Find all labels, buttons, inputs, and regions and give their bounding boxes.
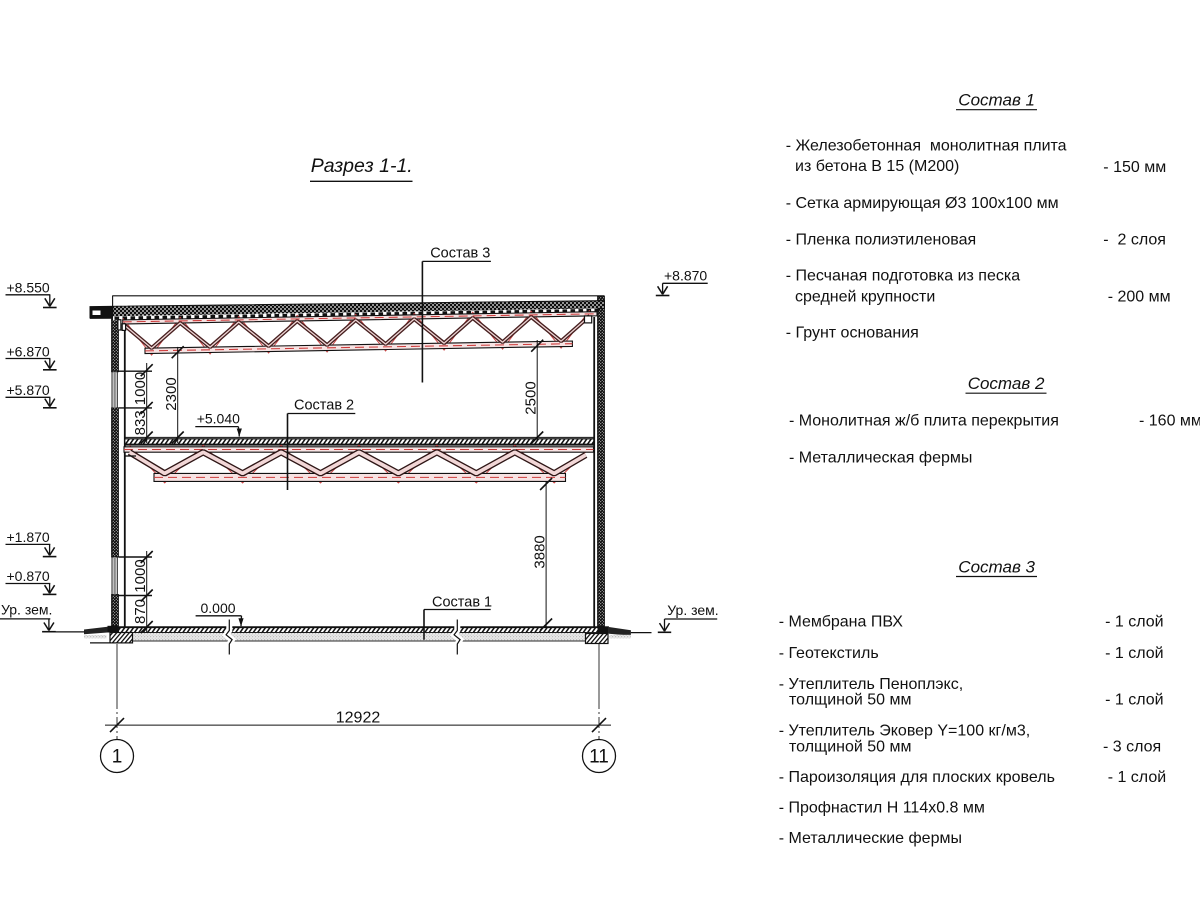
- svg-text:из бетона В 15 (М200): из бетона В 15 (М200): [795, 158, 959, 175]
- svg-text:- Пароизоляция для плоских кро: - Пароизоляция для плоских кровель: [779, 769, 1055, 786]
- svg-text:- Металлические фермы: - Металлические фермы: [779, 830, 962, 847]
- svg-text:Разрез 1-1.: Разрез 1-1.: [311, 155, 413, 177]
- svg-text:- Металлическая фермы: - Металлическая фермы: [789, 450, 972, 467]
- svg-text:- 2 слоя: - 2 слоя: [1103, 231, 1166, 248]
- svg-text:- Железобетонная монолитная п: - Железобетонная монолитная плита: [786, 138, 1067, 155]
- svg-text:- 150 мм: - 150 мм: [1103, 159, 1166, 176]
- svg-text:- Утеплитель Эковер Y=100 кг/м: - Утеплитель Эковер Y=100 кг/м3,: [779, 722, 1030, 739]
- svg-text:1000: 1000: [132, 559, 149, 592]
- svg-text:Состав 2: Состав 2: [294, 397, 354, 413]
- svg-text:- 160 мм: - 160 мм: [1139, 412, 1200, 429]
- svg-text:11: 11: [589, 747, 609, 768]
- svg-text:1: 1: [112, 747, 123, 768]
- svg-text:- 1 слой: - 1 слой: [1105, 614, 1163, 631]
- svg-text:- Пленка полиэтиленовая: - Пленка полиэтиленовая: [786, 231, 976, 248]
- svg-text:+0.870: +0.870: [7, 568, 50, 584]
- svg-text:Состав 2: Состав 2: [968, 374, 1045, 393]
- svg-text:Состав 3: Состав 3: [958, 557, 1035, 576]
- svg-text:2300: 2300: [163, 377, 180, 410]
- svg-text:+8.550: +8.550: [7, 280, 50, 296]
- svg-text:- 1 слой: - 1 слой: [1108, 769, 1166, 786]
- svg-text:- Утеплитель Пеноплэкс,: - Утеплитель Пеноплэкс,: [779, 676, 963, 693]
- svg-text:+1.870: +1.870: [7, 529, 50, 545]
- svg-text:Состав 1: Состав 1: [958, 91, 1035, 110]
- svg-text:толщиной 50 мм: толщиной 50 мм: [789, 692, 912, 709]
- svg-text:- Геотекстиль: - Геотекстиль: [779, 645, 879, 662]
- svg-text:- Профнастил Н 114х0.8 мм: - Профнастил Н 114х0.8 мм: [779, 799, 985, 816]
- svg-text:+8.870: +8.870: [664, 268, 707, 284]
- svg-text:Ур. зем.: Ур. зем.: [1, 602, 52, 618]
- svg-text:- Сетка армирующая Ø3 100х100: - Сетка армирующая Ø3 100х100 мм: [786, 195, 1059, 212]
- svg-text:- Грунт основания: - Грунт основания: [786, 325, 919, 342]
- svg-text:2500: 2500: [523, 381, 540, 414]
- svg-text:3880: 3880: [532, 535, 549, 568]
- svg-text:толщиной 50 мм: толщиной 50 мм: [789, 738, 912, 755]
- svg-text:Состав 1: Состав 1: [432, 594, 492, 610]
- svg-text:- 3 слоя: - 3 слоя: [1103, 738, 1161, 755]
- svg-text:- Песчаная подготовка из песка: - Песчаная подготовка из песка: [786, 268, 1021, 285]
- svg-text:- 1 слой: - 1 слой: [1105, 645, 1163, 662]
- svg-text:Ур. зем.: Ур. зем.: [667, 602, 718, 618]
- svg-text:Состав 3: Состав 3: [430, 246, 490, 262]
- svg-text:- 200 мм: - 200 мм: [1108, 289, 1171, 306]
- svg-text:1000: 1000: [132, 372, 149, 405]
- svg-text:870: 870: [132, 599, 149, 624]
- svg-text:+5.870: +5.870: [7, 382, 50, 398]
- svg-text:- Мембрана ПВХ: - Мембрана ПВХ: [779, 614, 904, 631]
- svg-text:+5.040: +5.040: [197, 411, 240, 427]
- svg-text:0.000: 0.000: [201, 600, 236, 616]
- svg-text:- 1 слой: - 1 слой: [1105, 692, 1163, 709]
- svg-text:+6.870: +6.870: [7, 343, 50, 359]
- svg-text:средней крупности: средней крупности: [795, 289, 935, 306]
- svg-text:12922: 12922: [336, 710, 381, 727]
- svg-text:- Монолитная ж/б плита перекры: - Монолитная ж/б плита перекрытия: [789, 412, 1059, 429]
- svg-text:833: 833: [132, 410, 149, 435]
